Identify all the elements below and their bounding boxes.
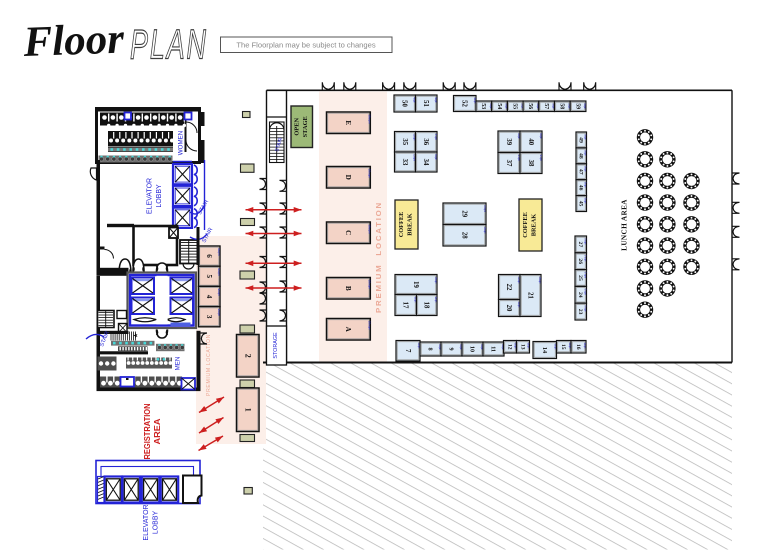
svg-text:48: 48	[578, 153, 584, 159]
svg-text:D: D	[344, 175, 352, 180]
svg-text:16: 16	[575, 344, 581, 350]
svg-text:2: 2	[243, 354, 252, 358]
svg-text:59: 59	[574, 103, 580, 109]
svg-text:A: A	[344, 327, 352, 333]
svg-text:9 sqm: 9 sqm	[517, 155, 519, 161]
svg-text:12: 12	[506, 344, 512, 350]
svg-text:3: 3	[205, 315, 213, 319]
svg-text:6sqm: 6sqm	[514, 343, 516, 349]
svg-text:OPEN: OPEN	[294, 118, 301, 136]
svg-text:25: 25	[577, 275, 583, 281]
svg-text:58: 58	[559, 103, 565, 109]
svg-text:9sqm: 9sqm	[414, 297, 416, 303]
svg-text:18sqm: 18sqm	[368, 169, 372, 179]
svg-text:3sqm: 3sqm	[584, 182, 586, 188]
svg-text:3sqm: 3sqm	[505, 103, 507, 109]
svg-text:49: 49	[578, 137, 584, 143]
svg-text:BREAK: BREAK	[531, 214, 538, 236]
svg-text:18sqm: 18sqm	[434, 277, 436, 284]
svg-text:3sqm: 3sqm	[584, 166, 586, 172]
svg-text:9: 9	[448, 347, 455, 350]
svg-text:8 sqm: 8 sqm	[434, 134, 436, 140]
svg-text:15: 15	[560, 344, 566, 350]
svg-text:47: 47	[578, 169, 584, 175]
svg-text:The Floorplan may be subject t: The Floorplan may be subject to changes	[236, 41, 376, 50]
svg-text:ELEVATOR: ELEVATOR	[147, 178, 154, 214]
svg-text:3 sqm: 3 sqm	[584, 272, 586, 278]
svg-text:55: 55	[511, 103, 517, 109]
svg-text:4sqm: 4sqm	[434, 97, 436, 103]
svg-text:12sqm: 12sqm	[413, 134, 415, 141]
svg-text:12sqm: 12sqm	[517, 277, 519, 284]
svg-text:39: 39	[505, 138, 512, 145]
svg-text:E: E	[344, 120, 352, 125]
svg-text:6sqm: 6sqm	[434, 154, 436, 160]
svg-text:6: 6	[205, 254, 213, 258]
svg-text:18sqm: 18sqm	[483, 205, 485, 212]
svg-text:40: 40	[527, 138, 534, 145]
svg-text:33: 33	[401, 159, 408, 166]
svg-text:6sqm: 6sqm	[517, 302, 519, 308]
svg-text:28: 28	[460, 232, 467, 239]
svg-text:LOBBY: LOBBY	[153, 511, 160, 535]
svg-text:3sqm: 3sqm	[584, 134, 586, 140]
svg-text:13: 13	[519, 344, 525, 350]
svg-text:7: 7	[404, 349, 411, 353]
svg-text:6sqm: 6sqm	[554, 344, 556, 350]
svg-text:3sqm: 3sqm	[584, 150, 586, 156]
svg-text:4: 4	[205, 295, 213, 299]
svg-text:PLAN: PLAN	[130, 22, 208, 68]
svg-text:6sqm: 6sqm	[438, 344, 440, 350]
svg-text:50: 50	[401, 100, 408, 107]
svg-text:9sqm: 9sqm	[217, 248, 221, 256]
svg-text:9sqm: 9sqm	[539, 133, 541, 139]
svg-text:14: 14	[541, 347, 548, 354]
svg-text:WOMEN: WOMEN	[178, 131, 185, 155]
svg-text:COFFEE: COFFEE	[522, 212, 529, 238]
svg-text:1: 1	[243, 408, 252, 412]
svg-text:Floor: Floor	[22, 15, 126, 66]
svg-text:STORAGE: STORAGE	[273, 332, 279, 359]
svg-text:BREAK: BREAK	[407, 213, 414, 235]
svg-text:AREA: AREA	[152, 419, 162, 445]
svg-text:3sqm: 3sqm	[552, 103, 554, 109]
svg-text:46: 46	[578, 185, 584, 191]
svg-text:3 sqm: 3 sqm	[584, 305, 586, 311]
svg-text:23: 23	[577, 309, 583, 315]
svg-text:3 sqm: 3 sqm	[584, 255, 586, 261]
svg-text:37: 37	[505, 160, 512, 167]
svg-text:18sqm: 18sqm	[483, 227, 485, 234]
svg-text:24: 24	[577, 292, 583, 298]
svg-text:3sqm: 3sqm	[584, 198, 586, 204]
svg-text:6sqm: 6sqm	[459, 344, 461, 350]
svg-text:18: 18	[423, 302, 430, 309]
svg-text:6sqm: 6sqm	[568, 343, 570, 349]
svg-text:6sqm: 6sqm	[480, 344, 482, 350]
svg-text:9sqm: 9sqm	[217, 268, 221, 276]
svg-text:51: 51	[422, 100, 429, 107]
svg-text:ELEVATOR: ELEVATOR	[143, 504, 150, 540]
svg-text:20: 20	[505, 305, 512, 312]
svg-text:3sqm: 3sqm	[583, 103, 585, 109]
svg-text:REGISTRATION: REGISTRATION	[142, 404, 152, 460]
svg-text:3sqm: 3sqm	[520, 103, 522, 109]
svg-text:38: 38	[527, 160, 534, 167]
svg-text:57: 57	[543, 103, 549, 109]
svg-text:34: 34	[422, 159, 429, 166]
svg-text:B: B	[344, 286, 352, 291]
svg-text:C: C	[344, 230, 352, 235]
svg-text:4sqm: 4sqm	[473, 98, 475, 104]
svg-text:18sqm: 18sqm	[368, 114, 372, 124]
svg-text:3sqm: 3sqm	[489, 103, 491, 109]
svg-text:6sqm: 6sqm	[417, 343, 419, 349]
svg-text:35: 35	[401, 138, 408, 145]
svg-text:STAIR: STAIR	[197, 199, 210, 216]
svg-text:9sqm: 9sqm	[434, 297, 436, 303]
svg-text:18sqm: 18sqm	[368, 280, 372, 290]
svg-text:LUNCH AREA: LUNCH AREA	[621, 199, 629, 251]
svg-text:26: 26	[577, 258, 583, 264]
svg-text:COFFEE: COFFEE	[398, 212, 405, 238]
svg-text:29: 29	[460, 210, 467, 217]
svg-text:19: 19	[412, 281, 419, 288]
svg-text:36: 36	[422, 138, 429, 145]
svg-text:53: 53	[480, 103, 486, 109]
svg-text:9sqm: 9sqm	[517, 133, 519, 139]
svg-text:18sqm: 18sqm	[368, 224, 372, 234]
svg-text:9sqm: 9sqm	[217, 289, 221, 297]
svg-text:PREMIUM LOCATION: PREMIUM LOCATION	[206, 334, 212, 396]
svg-text:3sqm: 3sqm	[536, 103, 538, 109]
svg-text:12sqm: 12sqm	[413, 154, 415, 161]
svg-text:4sqm: 4sqm	[413, 97, 415, 103]
svg-text:10: 10	[469, 346, 476, 352]
svg-text:3 sqm: 3 sqm	[584, 238, 586, 244]
svg-text:11: 11	[490, 346, 497, 352]
svg-text:3sqm: 3sqm	[567, 103, 569, 109]
svg-text:27: 27	[577, 242, 583, 248]
svg-text:5: 5	[205, 275, 213, 279]
svg-text:3 sqm: 3 sqm	[584, 289, 586, 295]
svg-text:17: 17	[402, 302, 409, 309]
svg-text:6sqm: 6sqm	[527, 343, 529, 349]
svg-text:52: 52	[461, 100, 468, 107]
svg-text:PREMIUM LOCATION: PREMIUM LOCATION	[376, 201, 383, 313]
svg-text:22: 22	[505, 284, 512, 291]
svg-text:56: 56	[527, 103, 533, 109]
svg-text:21: 21	[526, 292, 533, 299]
svg-text:8: 8	[427, 347, 434, 350]
svg-text:6sqm: 6sqm	[583, 343, 585, 349]
svg-text:9 sqm: 9 sqm	[539, 155, 541, 161]
svg-text:9sqm: 9sqm	[217, 309, 221, 317]
svg-text:LOBBY: LOBBY	[156, 184, 163, 208]
svg-text:MEN: MEN	[175, 357, 182, 371]
svg-text:45: 45	[578, 201, 584, 207]
svg-text:18sqm: 18sqm	[538, 277, 540, 284]
svg-text:STAGE: STAGE	[302, 116, 309, 137]
svg-text:54: 54	[496, 103, 502, 109]
svg-text:18sqm: 18sqm	[368, 321, 372, 331]
